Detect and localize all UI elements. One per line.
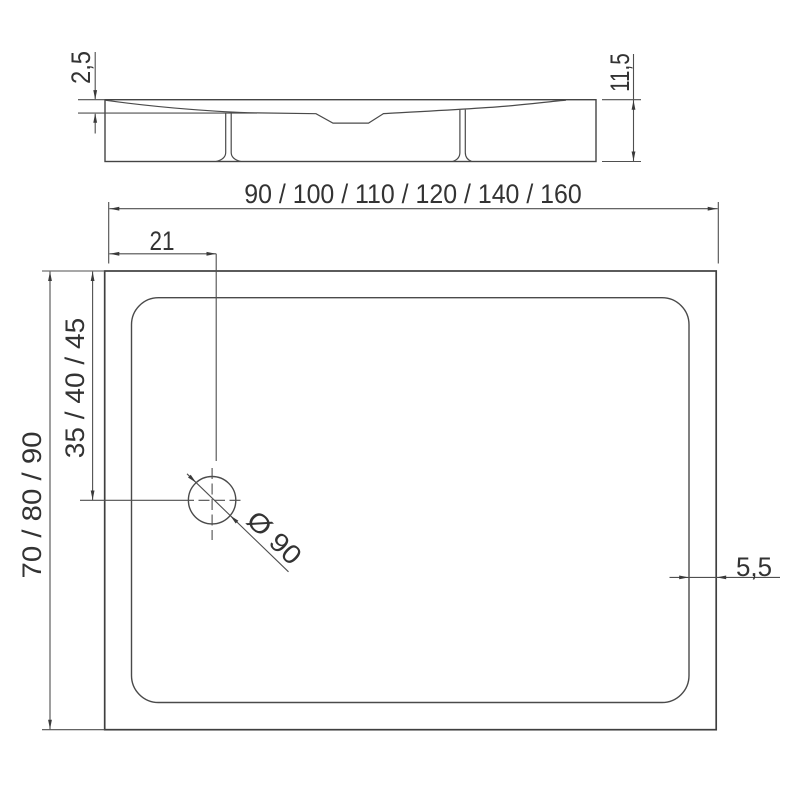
svg-text:90 / 100 / 110 / 120 / 140 / 1: 90 / 100 / 110 / 120 / 140 / 160	[244, 179, 582, 209]
svg-text:5,5: 5,5	[736, 552, 772, 582]
svg-text:21: 21	[150, 226, 175, 256]
svg-text:70 / 80 / 90: 70 / 80 / 90	[17, 432, 47, 579]
svg-text:35 / 40 / 45: 35 / 40 / 45	[60, 318, 90, 459]
svg-text:2,5: 2,5	[66, 51, 96, 84]
svg-text:11,5: 11,5	[605, 53, 635, 92]
